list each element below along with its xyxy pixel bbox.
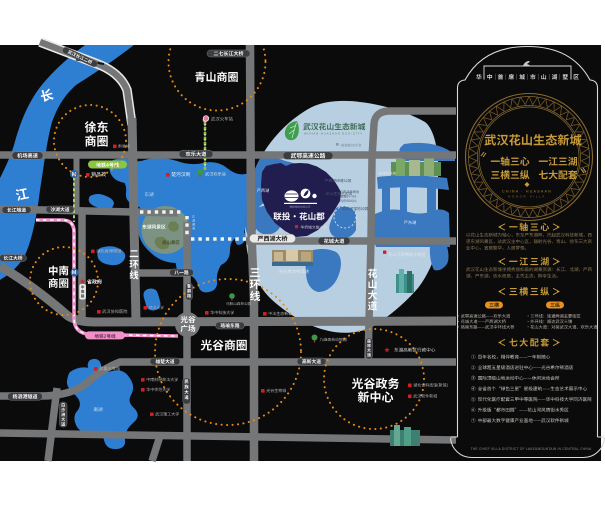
- svg-text:THE CHIEF VILLA DISTRICT OF LA: THE CHIEF VILLA DISTRICT OF LAKE&MOUNTAI…: [471, 447, 592, 451]
- svg-text:WUHAN HUASHAN ECO-CITY: WUHAN HUASHAN ECO-CITY: [304, 131, 363, 135]
- svg-text:CHINA · HUASHAN: CHINA · HUASHAN: [502, 190, 552, 194]
- svg-text:HONOR VILLA: HONOR VILLA: [508, 195, 546, 199]
